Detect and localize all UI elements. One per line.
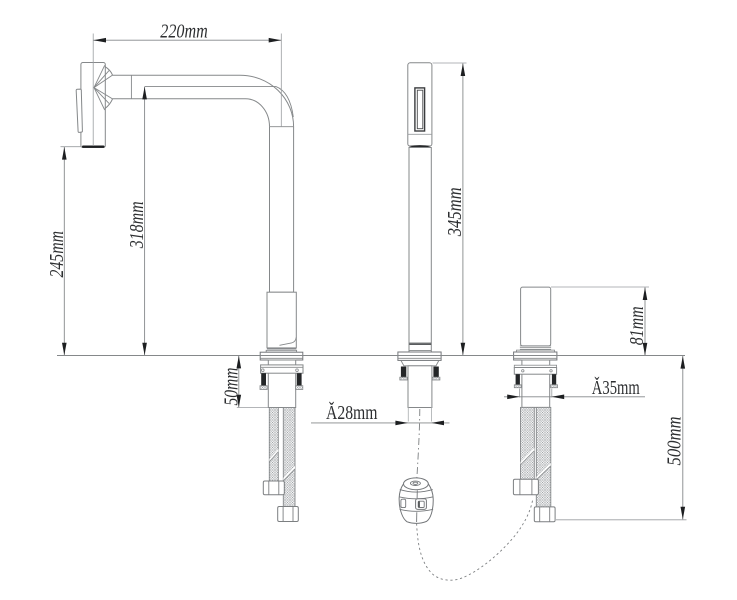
svg-text:345mm: 345mm xyxy=(444,187,466,237)
svg-text:318mm: 318mm xyxy=(126,201,148,249)
svg-text:245mm: 245mm xyxy=(46,231,68,278)
svg-text:Ǎ28mm: Ǎ28mm xyxy=(326,401,378,424)
svg-text:81mm: 81mm xyxy=(626,306,648,345)
svg-text:Ǎ35mm: Ǎ35mm xyxy=(592,376,640,399)
svg-text:220mm: 220mm xyxy=(160,21,208,43)
svg-text:500mm: 500mm xyxy=(664,417,686,466)
svg-text:50mm: 50mm xyxy=(221,368,243,406)
